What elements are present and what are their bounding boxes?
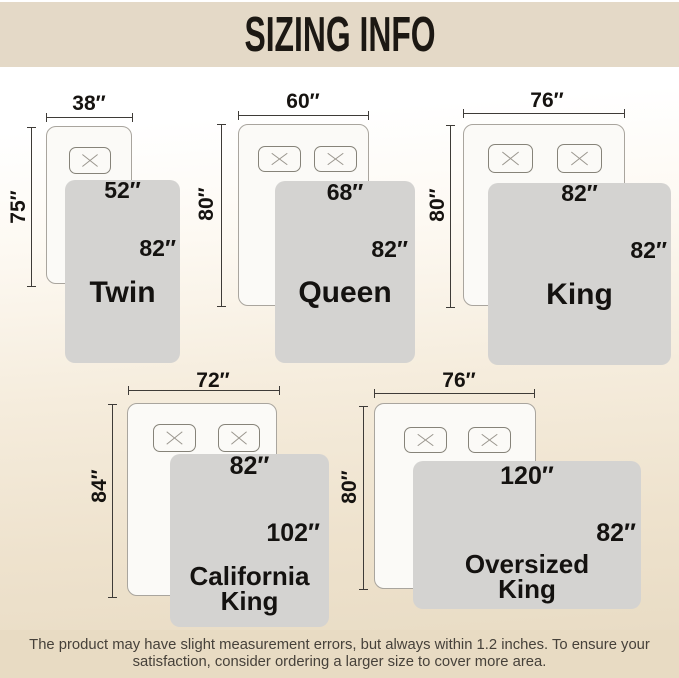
footer-note-line2: satisfaction, consider ordering a larger… — [133, 654, 547, 671]
blanket-width-label: 68″ — [275, 179, 415, 206]
dimension-line — [464, 113, 624, 114]
blanket-length-label: 82″ — [139, 235, 176, 262]
blanket-width-label: 120″ — [413, 462, 641, 491]
pillow-x-icon — [70, 148, 110, 173]
pillow-x-icon — [469, 428, 510, 452]
mattress-width-label: 38″ — [72, 92, 105, 116]
pillow — [468, 427, 511, 453]
footer-note: The product may have slight measurement … — [0, 630, 679, 678]
blanket: 68″ 82″ Queen — [275, 181, 415, 363]
dimension-line — [31, 128, 32, 286]
pillow-x-icon — [219, 425, 259, 451]
blanket-name: Oversized King — [442, 552, 612, 602]
blanket-name: Queen — [275, 276, 415, 310]
blanket: 82″ 102″ California King — [170, 454, 329, 627]
blanket-length-label: 82″ — [596, 519, 636, 548]
mattress-length-label: 80″ — [195, 187, 219, 220]
pillow-x-icon — [154, 425, 195, 451]
mattress-length-label: 80″ — [338, 470, 362, 503]
dimension-line — [450, 126, 451, 307]
dimension-line — [363, 407, 364, 589]
blanket-length-label: 82″ — [630, 237, 667, 264]
dimension-line — [47, 117, 132, 118]
blanket-name: California King — [175, 564, 325, 614]
pillow — [557, 144, 602, 173]
pillow-x-icon — [558, 145, 601, 172]
blanket-length-label: 82″ — [371, 236, 408, 263]
blanket: 120″ 82″ Oversized King — [413, 461, 641, 609]
mattress-width-label: 72″ — [196, 369, 229, 393]
mattress-width-label: 60″ — [286, 90, 319, 114]
dimension-line — [221, 125, 222, 306]
blanket-length-label: 102″ — [266, 519, 320, 548]
sizing-info-page: SIZING INFO 38″ 75″ 52″ 82″ Twin 60″ 80″ — [0, 0, 679, 678]
pillow — [258, 146, 301, 172]
blanket: 82″ 82″ King — [488, 183, 671, 365]
page-title: SIZING INFO — [244, 7, 435, 63]
pillow-x-icon — [405, 428, 446, 452]
pillow — [404, 427, 447, 453]
pillow — [314, 146, 357, 172]
pillow-x-icon — [315, 147, 356, 171]
blanket-name: Twin — [65, 276, 180, 310]
blanket: 52″ 82″ Twin — [65, 180, 180, 363]
pillow — [488, 144, 533, 173]
pillow-x-icon — [489, 145, 532, 172]
mattress-width-label: 76″ — [442, 369, 475, 393]
dimension-line — [375, 393, 534, 394]
blanket-width-label: 82″ — [170, 452, 329, 481]
dimension-line — [239, 115, 368, 116]
blanket-width-label: 82″ — [488, 180, 671, 207]
pillow — [69, 147, 111, 174]
dimension-line — [112, 405, 113, 597]
mattress-length-label: 84″ — [88, 469, 112, 502]
footer-note-line1: The product may have slight measurement … — [29, 637, 650, 654]
blanket-name: King — [488, 278, 671, 312]
pillow-x-icon — [259, 147, 300, 171]
mattress-width-label: 76″ — [530, 89, 563, 113]
pillow — [218, 424, 260, 452]
blanket-width-label: 52″ — [65, 177, 180, 204]
pillow — [153, 424, 196, 452]
mattress-length-label: 75″ — [7, 190, 31, 223]
mattress-length-label: 80″ — [426, 188, 450, 221]
header-band: SIZING INFO — [0, 2, 679, 67]
